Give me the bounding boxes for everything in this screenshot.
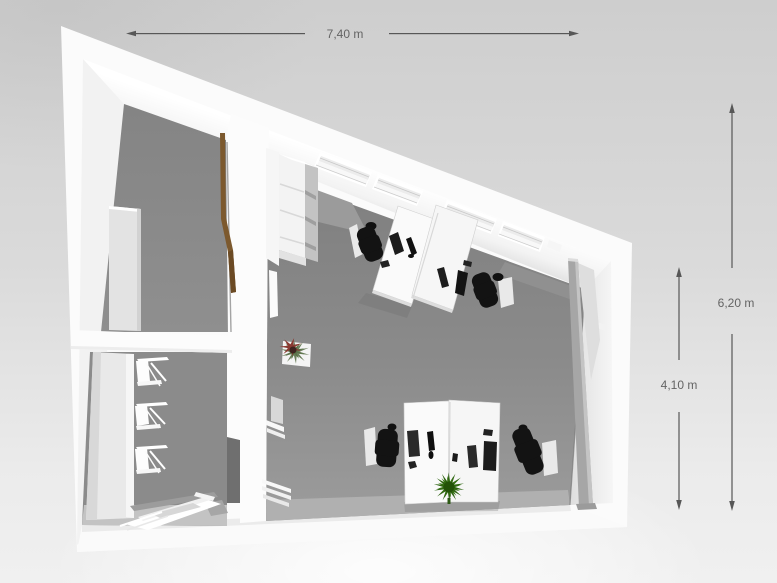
- svg-text:4,10 m: 4,10 m: [661, 378, 698, 392]
- svg-text:6,20 m: 6,20 m: [718, 296, 755, 310]
- svg-text:7,40 m: 7,40 m: [327, 27, 364, 41]
